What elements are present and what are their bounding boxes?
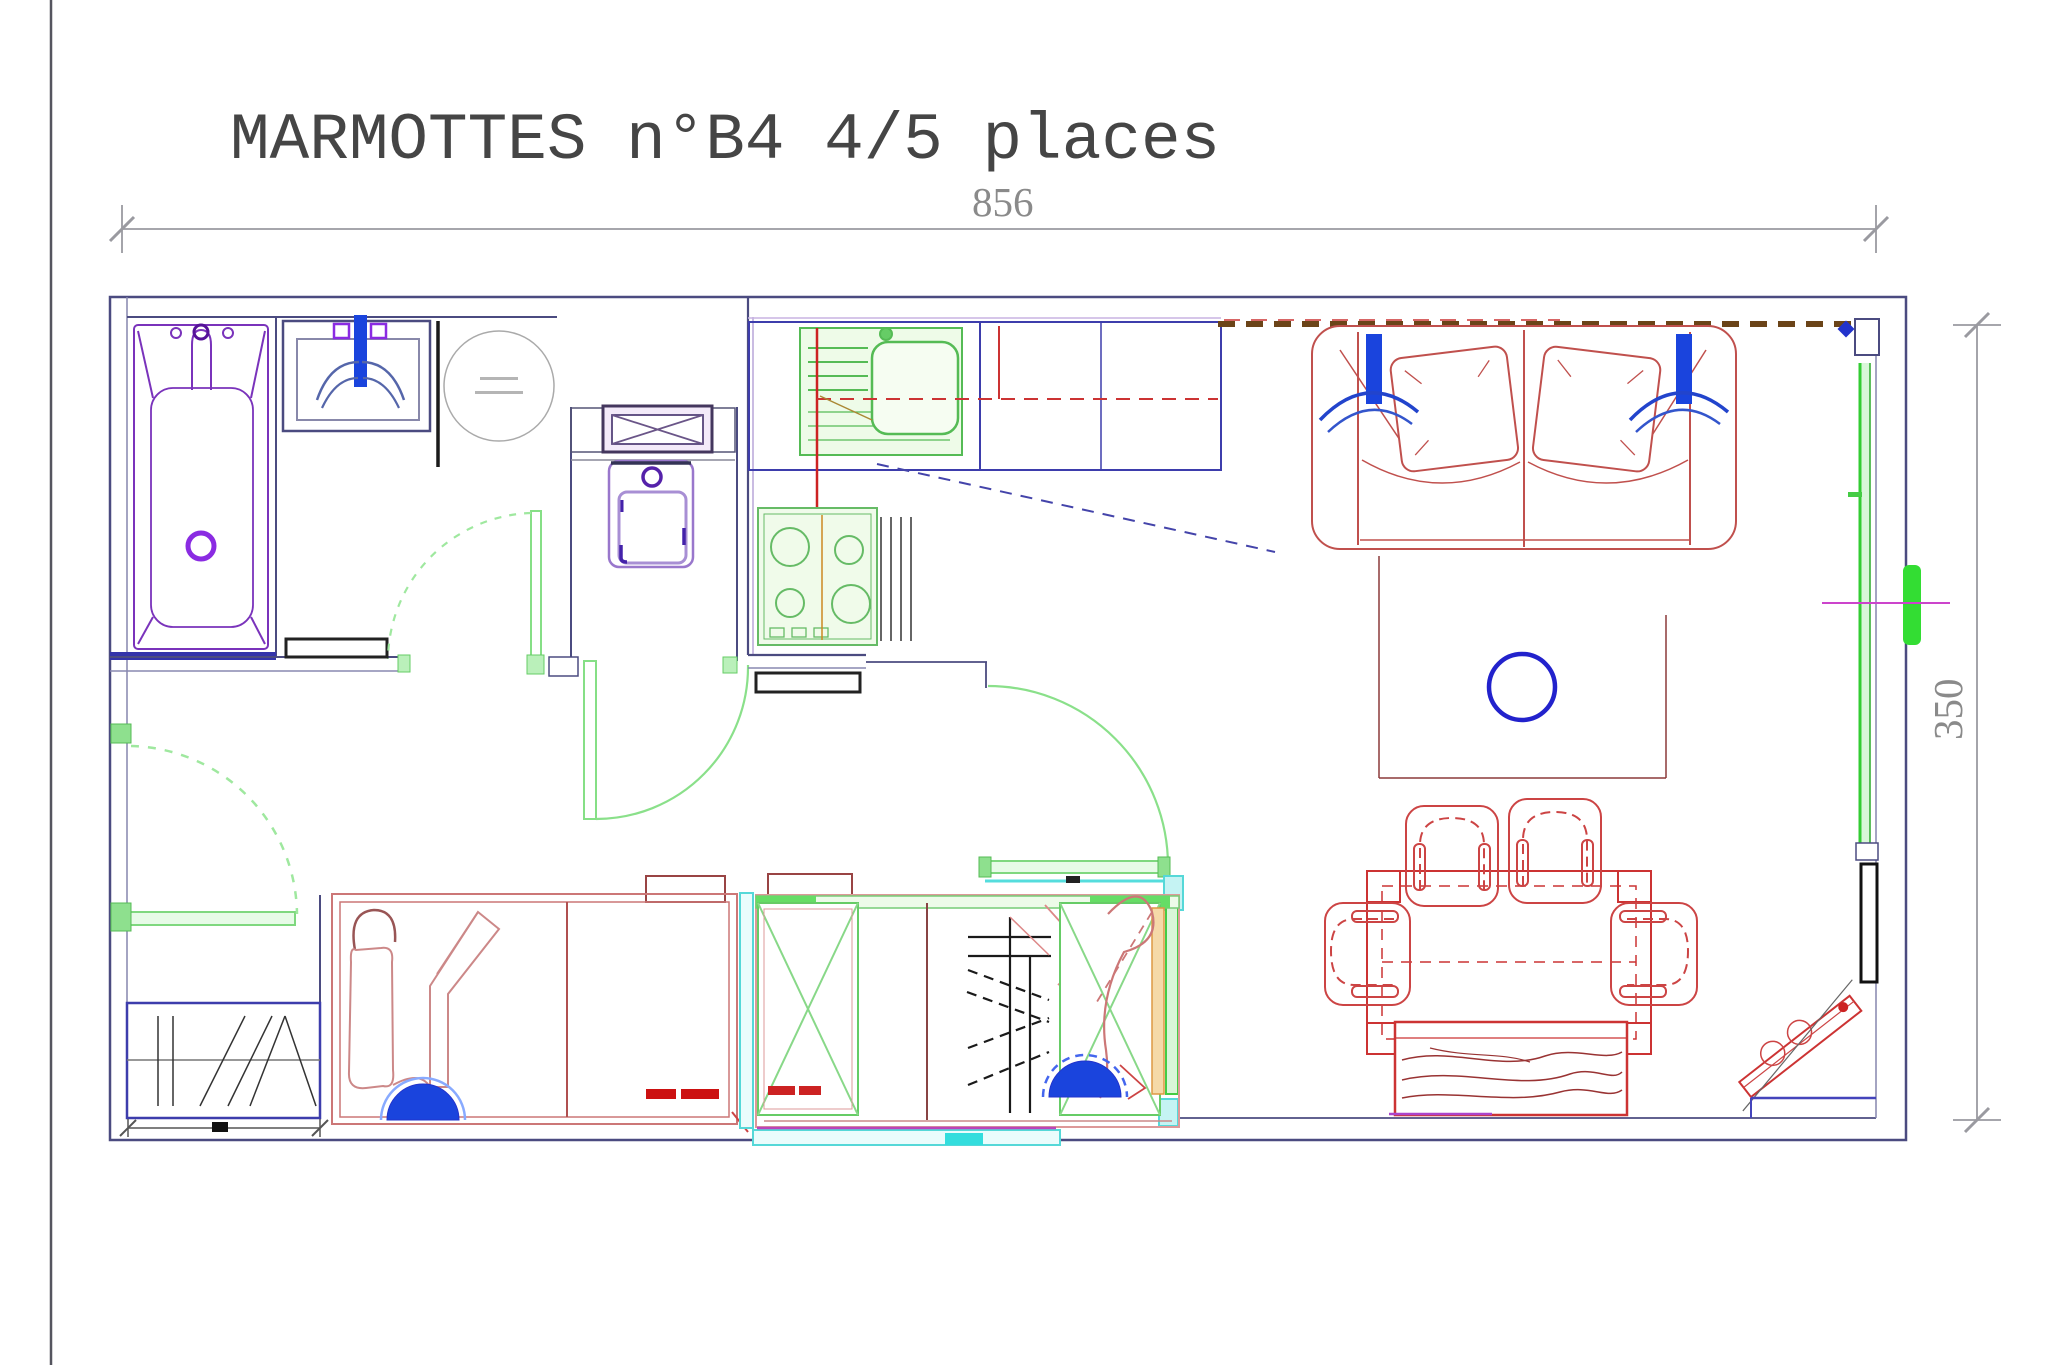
svg-text:856: 856 xyxy=(972,179,1034,225)
svg-text:MARMOTTES n°B4 4/5 places: MARMOTTES n°B4 4/5 places xyxy=(230,103,1220,178)
svg-text:350: 350 xyxy=(1925,679,1971,741)
